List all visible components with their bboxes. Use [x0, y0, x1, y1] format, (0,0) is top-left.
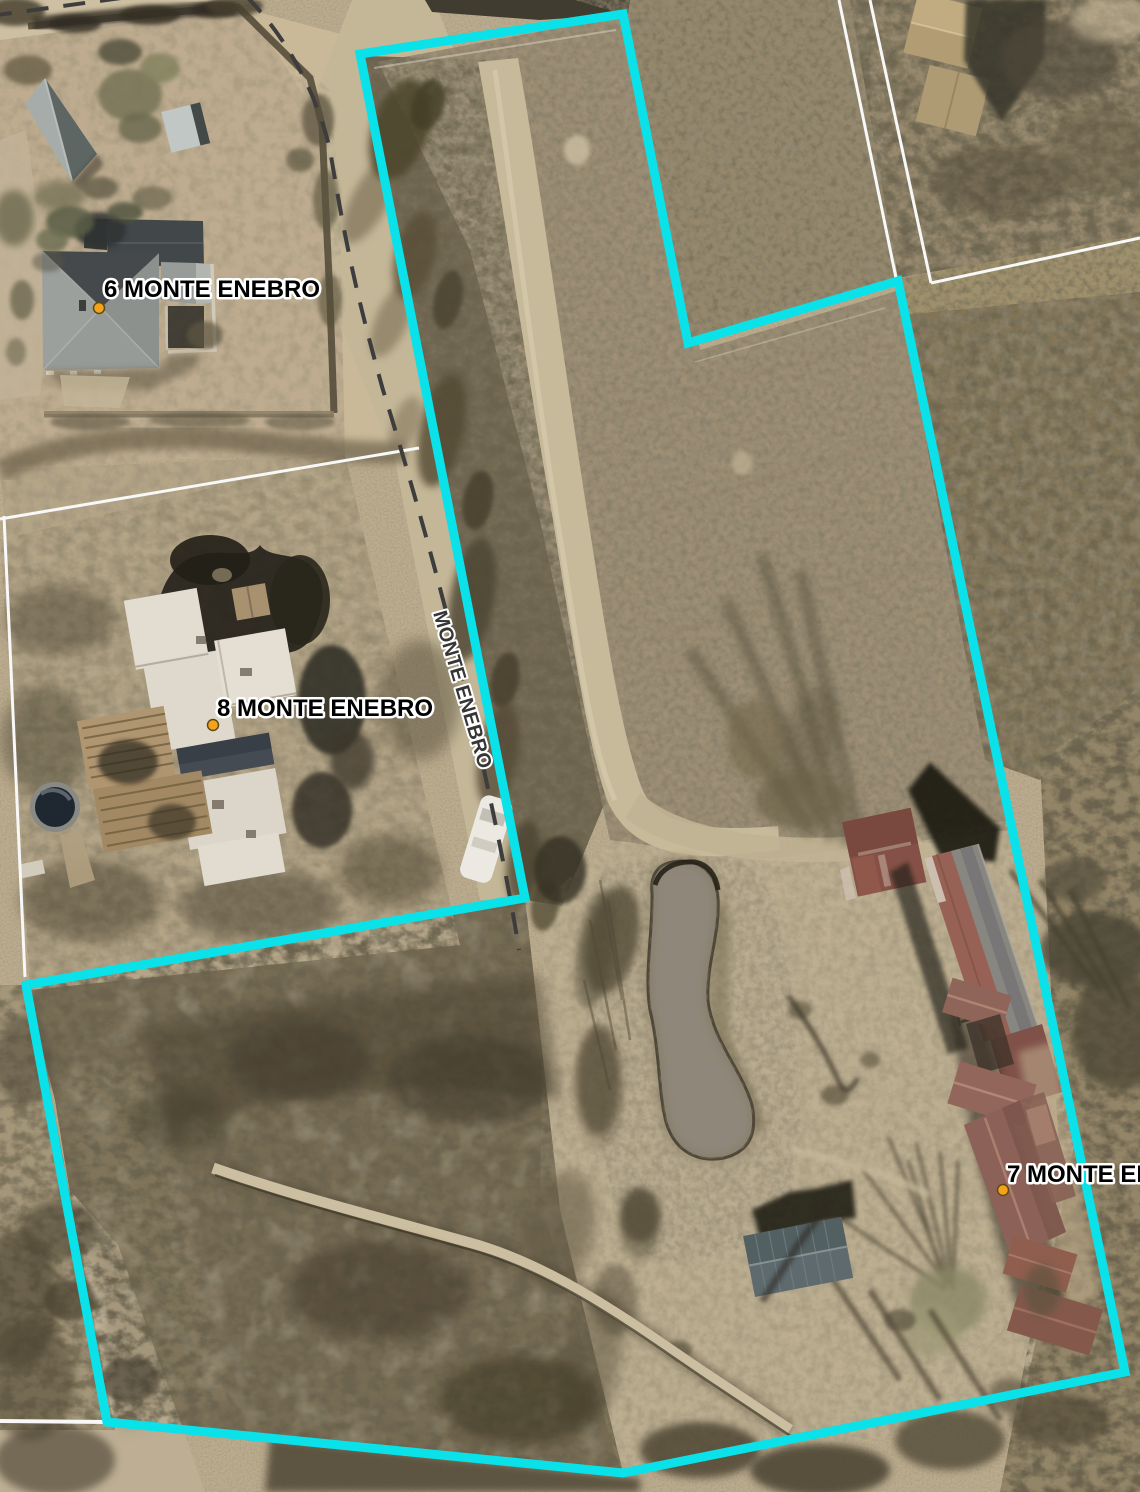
svg-text:6 MONTE ENEBRO: 6 MONTE ENEBRO: [104, 276, 320, 303]
svg-text:7 MONTE ENEBRO: 7 MONTE ENEBRO: [1007, 1161, 1140, 1188]
svg-text:8 MONTE ENEBRO: 8 MONTE ENEBRO: [217, 695, 433, 722]
